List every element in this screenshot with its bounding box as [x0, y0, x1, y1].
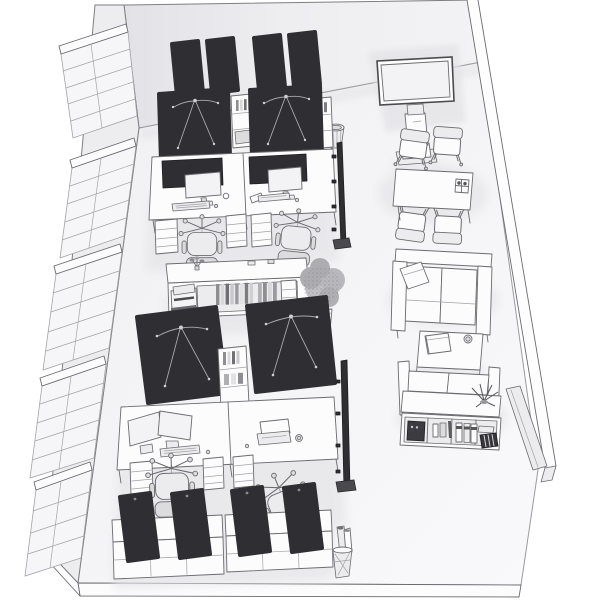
sofa-back-shelf: [401, 391, 501, 417]
sofa-armrest: [476, 266, 492, 335]
high-back-panel: [289, 32, 320, 87]
sofa-cushion: [440, 268, 477, 325]
mouse: [206, 450, 210, 454]
cup: [223, 193, 229, 199]
mouse: [295, 198, 298, 201]
office-isometric-render: [0, 0, 600, 600]
mouse: [245, 444, 248, 447]
sofa-cushion: [447, 373, 489, 395]
acoustic-panel: [232, 487, 270, 555]
tv-neck: [407, 104, 424, 115]
paper-stack: [478, 426, 494, 433]
canopy-desk-dark: [137, 307, 227, 403]
notebook: [425, 333, 451, 354]
cup: [464, 335, 472, 343]
canopy-desk-dark: [250, 86, 322, 158]
canopy-desk-dark: [247, 297, 335, 392]
shelf-jar: [440, 423, 446, 437]
top-item: [248, 261, 255, 265]
canopy-desk-dark: [159, 89, 230, 162]
right-wall-end-face: [541, 466, 556, 482]
tv-screen: [381, 61, 450, 101]
striped-file-box: [480, 433, 498, 448]
acoustic-panel: [172, 490, 210, 558]
spine-shelf: [218, 346, 249, 407]
high-back-panel: [172, 41, 203, 96]
high-back-panel: [254, 35, 285, 90]
drawer-pedestal: [233, 455, 254, 488]
render-canvas: [0, 0, 600, 600]
laptop: [257, 419, 291, 445]
low-sideboards-south: [112, 484, 352, 579]
acoustic-panel: [120, 493, 158, 561]
drawer-pedestal: [155, 219, 178, 254]
cup-caddy: [455, 179, 469, 193]
drawer-pedestal: [203, 457, 224, 490]
ring-binders: [456, 423, 477, 443]
mouse: [214, 204, 217, 207]
drawer-pedestal: [226, 214, 247, 248]
shelf-jar: [433, 424, 438, 437]
sofa-cushion: [408, 371, 449, 393]
open-shelf-unit: [400, 413, 501, 450]
drawer-pedestal: [251, 213, 272, 247]
acoustic-panel: [284, 484, 322, 552]
top-item: [268, 260, 274, 264]
shelf-appliance: [407, 421, 425, 441]
high-back-panel: [207, 38, 238, 93]
